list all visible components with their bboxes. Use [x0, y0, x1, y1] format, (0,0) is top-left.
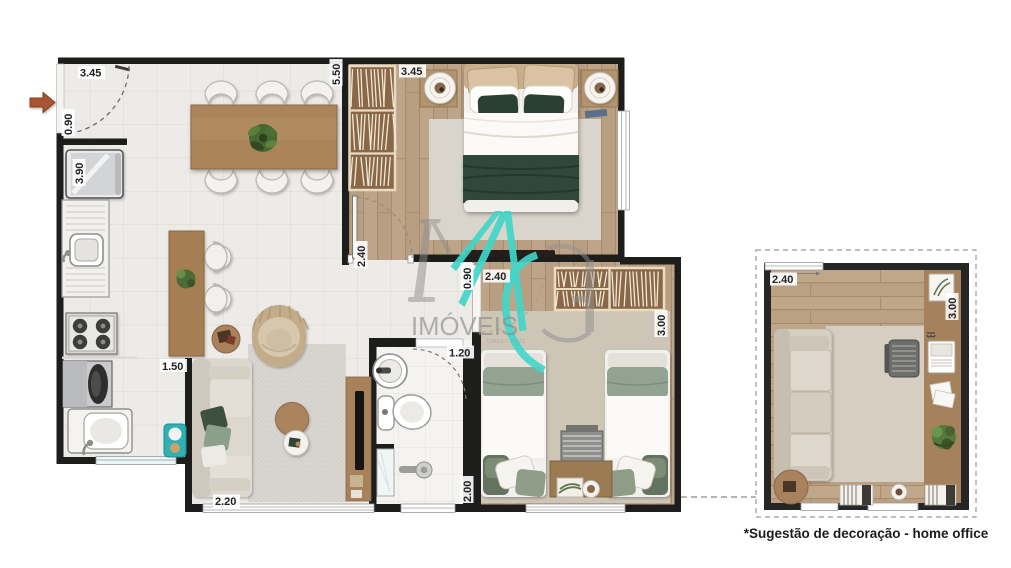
- svg-text:3.45: 3.45: [80, 68, 101, 80]
- svg-text:CRECI 9522: CRECI 9522: [487, 339, 526, 345]
- svg-text:2.40: 2.40: [485, 271, 506, 283]
- svg-text:1.20: 1.20: [449, 348, 470, 360]
- svg-text:3.00: 3.00: [947, 298, 959, 319]
- svg-text:2.00: 2.00: [462, 481, 474, 502]
- svg-text:0.90: 0.90: [63, 114, 75, 135]
- svg-text:3.45: 3.45: [401, 66, 422, 78]
- svg-text:IMÓVEIS: IMÓVEIS: [411, 311, 518, 341]
- svg-text:5.50: 5.50: [331, 64, 343, 85]
- svg-text:2.40: 2.40: [772, 274, 793, 286]
- svg-text:2.40: 2.40: [356, 246, 368, 267]
- svg-text:2.20: 2.20: [215, 496, 236, 508]
- svg-text:1.50: 1.50: [162, 361, 183, 373]
- svg-text:3.90: 3.90: [74, 163, 86, 184]
- svg-text:0.90: 0.90: [462, 268, 474, 289]
- svg-text:*Sugestão de decoração - home: *Sugestão de decoração - home office: [744, 526, 989, 541]
- svg-text:3.00: 3.00: [656, 315, 668, 336]
